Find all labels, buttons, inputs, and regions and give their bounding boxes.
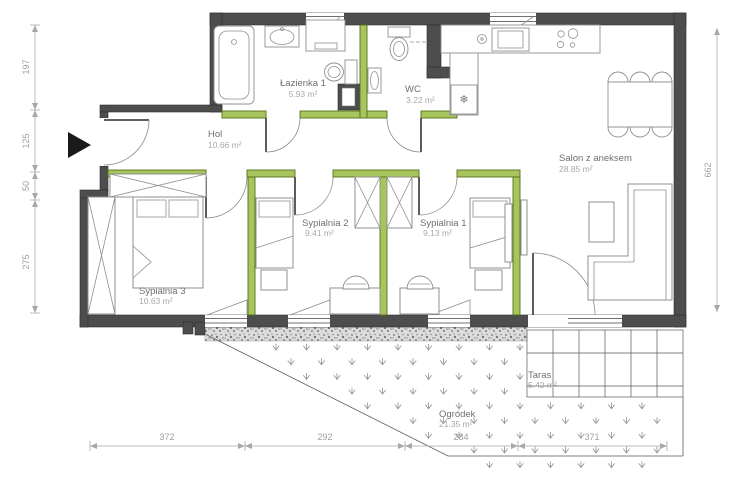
entrance-door: [104, 120, 149, 165]
room-label-hol: Hol: [208, 129, 222, 140]
dining-set: [608, 72, 672, 137]
room-area-wc: 3.22 m²: [406, 95, 435, 105]
dim-left-50: 50: [21, 181, 31, 191]
entrance-opening: [100, 118, 108, 166]
chair: [630, 127, 650, 137]
toilet-bathroom: [345, 60, 357, 84]
window-bedroom3: [205, 315, 247, 327]
bedroom2-furniture: [256, 177, 380, 314]
room-label-lazienka: Łazienka 1: [280, 78, 326, 89]
dining-table: [608, 82, 672, 127]
bedroom1-furniture: [387, 177, 512, 314]
window-salon: [568, 315, 622, 327]
bathtub: [214, 26, 254, 104]
chair: [652, 72, 672, 82]
room-area-sypialnia2: 9.41 m²: [305, 228, 334, 238]
entrance-arrow-icon: [68, 132, 91, 158]
chair: [608, 72, 628, 82]
dimension-bottom: 372 292 284 371: [90, 432, 667, 451]
room-area-lazienka: 5.93 m²: [289, 89, 318, 99]
dim-right-662: 662: [703, 162, 713, 177]
room-area-sypialnia1: 9.13 m²: [423, 228, 452, 238]
window-swing-triangle-bedroom2: [290, 300, 330, 315]
dimension-left: 197 125 50 275: [21, 25, 40, 313]
dim-bottom-284: 284: [453, 432, 468, 442]
grass-marks: [273, 344, 660, 468]
bedroom3-door: [206, 177, 247, 218]
kitchen-sink: [492, 28, 529, 51]
kitchen: ❄: [441, 25, 600, 115]
paving-strip: [205, 327, 527, 341]
floor-plan-svg: ❄: [0, 0, 739, 480]
duct-shaft: [342, 88, 355, 106]
room-area-hol: 10.66 m²: [208, 140, 242, 150]
toilet-wc-tank: [388, 27, 410, 37]
bed-double: [133, 196, 203, 288]
dimension-right: 662: [703, 28, 720, 312]
bedside-chest: [261, 270, 287, 290]
bedroom1-door: [419, 177, 457, 215]
window-bedroom1: [428, 315, 470, 327]
room-area-ogrodek: 21.35 m²: [439, 419, 473, 429]
terrace-door-opening: [528, 315, 568, 327]
dim-left-275: 275: [21, 254, 31, 269]
chair: [652, 127, 672, 137]
window-swing-triangle-bedroom3: [207, 300, 247, 315]
washing-machine: [306, 20, 345, 51]
dim-left-125: 125: [21, 133, 31, 148]
dim-bottom-372: 372: [159, 432, 174, 442]
room-label-salon: Salon z aneksem: [559, 153, 632, 164]
fridge-snowflake-icon: ❄: [459, 94, 468, 106]
chair: [608, 127, 628, 137]
shelf: [505, 204, 512, 262]
garden-area: [205, 327, 683, 468]
desk: [330, 288, 380, 314]
bedroom2-door: [295, 177, 333, 215]
desk-chair: [343, 276, 369, 289]
terrace-door: [533, 253, 595, 315]
tv-cabinet-salon: [521, 200, 527, 255]
bathroom-fixtures: [214, 20, 357, 104]
dim-bottom-292: 292: [317, 432, 332, 442]
bedside-chest: [475, 270, 502, 290]
salon-furniture: [521, 184, 672, 300]
chair: [630, 72, 650, 82]
room-area-taras: 5.42 m²: [528, 380, 557, 390]
window-bedroom2: [288, 315, 330, 327]
dim-bottom-371: 371: [584, 432, 599, 442]
bed-single: [470, 198, 510, 268]
desk: [400, 288, 439, 314]
coffee-table: [589, 202, 614, 242]
bathroom-door: [266, 118, 300, 152]
room-area-sypialnia3: 10.63 m²: [139, 296, 173, 306]
room-area-salon: 28.85 m²: [559, 164, 593, 174]
window-top-kitchen: [490, 13, 536, 25]
bed-single: [256, 198, 293, 268]
dim-left-197: 197: [21, 59, 31, 74]
toilet-wc: [390, 38, 408, 61]
wc-door: [387, 118, 421, 152]
floor-plan: ❄: [0, 0, 739, 480]
room-label-wc: WC: [405, 84, 421, 95]
desk-chair: [407, 276, 433, 289]
